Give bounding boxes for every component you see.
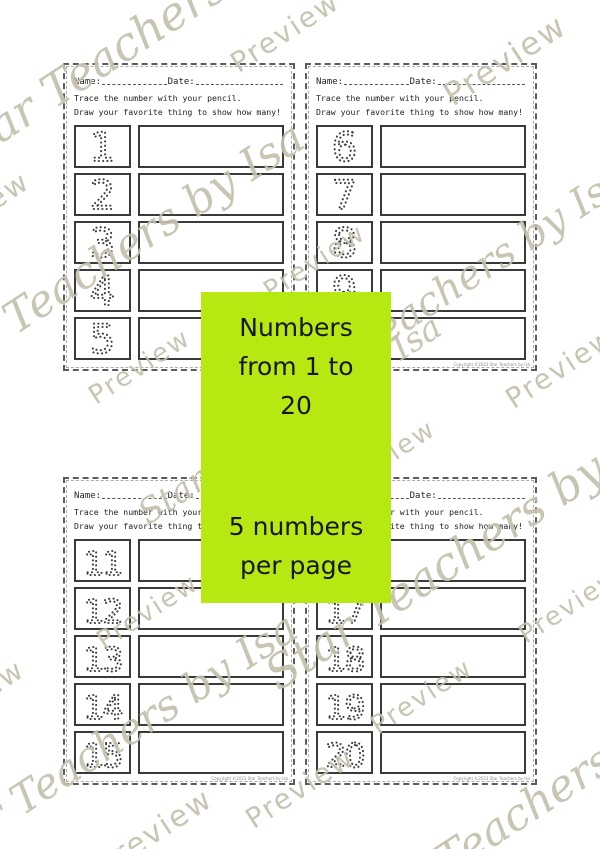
svg-text:3: 3 [90, 223, 115, 262]
number-box: 18 [316, 635, 373, 678]
trace-row: 13 [74, 635, 284, 678]
dotted-number-7: 7 [318, 175, 371, 214]
instruction-line-2: Draw your favorite thing to show how man… [316, 107, 526, 118]
name-label: Name: [316, 77, 343, 87]
overlay-subtitle-block: 5 numbers per page [205, 507, 387, 585]
name-label: Name: [74, 491, 101, 501]
date-blank-line [438, 84, 525, 85]
svg-text:14: 14 [84, 688, 123, 724]
drawing-box [380, 539, 526, 582]
trace-row: 19 [316, 683, 526, 726]
drawing-box [138, 683, 284, 726]
svg-text:13: 13 [84, 640, 122, 676]
date-blank-line [196, 84, 283, 85]
drawing-box [138, 125, 284, 168]
copyright-text: Copyright ©2023 Star Teachers by Isa [211, 776, 288, 781]
drawing-box [380, 731, 526, 774]
svg-text:19: 19 [326, 688, 364, 724]
number-box: 2 [74, 173, 131, 216]
svg-text:20: 20 [326, 736, 364, 772]
drawing-box [380, 269, 526, 312]
date-blank-line [438, 498, 525, 499]
drawing-box [380, 125, 526, 168]
dotted-number-15: 15 [76, 733, 129, 772]
number-box: 5 [74, 317, 131, 360]
watermark-preview-text: Preview [0, 165, 36, 260]
drawing-box [380, 635, 526, 678]
trace-row: 18 [316, 635, 526, 678]
number-box: 11 [74, 539, 131, 582]
name-date-line: Name: Date: [316, 74, 526, 87]
watermark-preview-text: Preview [0, 653, 31, 748]
number-box: 6 [316, 125, 373, 168]
dotted-number-3: 3 [76, 223, 129, 262]
number-box: 20 [316, 731, 373, 774]
product-info-overlay: Numbers from 1 to 20 5 numbers per page [201, 292, 391, 603]
number-box: 15 [74, 731, 131, 774]
dotted-number-2: 2 [76, 175, 129, 214]
trace-row: 20 [316, 731, 526, 774]
svg-text:2: 2 [90, 175, 115, 214]
svg-text:18: 18 [326, 640, 364, 676]
number-box: 13 [74, 635, 131, 678]
trace-row: 1 [74, 125, 284, 168]
watermark-preview-text: Preview [91, 782, 220, 849]
svg-text:15: 15 [84, 736, 122, 772]
svg-text:7: 7 [332, 175, 357, 214]
drawing-box [138, 635, 284, 678]
name-blank-line [102, 498, 167, 499]
trace-row: 15 [74, 731, 284, 774]
instruction-line-1: Trace the number with your pencil. [316, 93, 526, 104]
name-blank-line [344, 84, 409, 85]
dotted-number-14: 14 [76, 685, 129, 724]
svg-text:1: 1 [90, 127, 115, 166]
dotted-number-4: 4 [76, 271, 129, 310]
svg-text:5: 5 [90, 319, 115, 358]
trace-row: 2 [74, 173, 284, 216]
dotted-number-19: 19 [318, 685, 371, 724]
drawing-box [380, 683, 526, 726]
instruction-line-1: Trace the number with your pencil. [74, 93, 284, 104]
date-label: Date: [168, 77, 195, 87]
drawing-box [380, 587, 526, 630]
overlay-title-line-3: 20 [205, 386, 387, 425]
trace-row: 3 [74, 221, 284, 264]
number-box: 7 [316, 173, 373, 216]
dotted-number-1: 1 [76, 127, 129, 166]
overlay-subtitle-line-2: per page [205, 546, 387, 585]
drawing-box [138, 173, 284, 216]
drawing-box [380, 221, 526, 264]
overlay-title-line-2: from 1 to [205, 347, 387, 386]
trace-row: 7 [316, 173, 526, 216]
name-label: Name: [74, 77, 101, 87]
drawing-box [138, 731, 284, 774]
svg-text:11: 11 [84, 544, 122, 580]
trace-row: 14 [74, 683, 284, 726]
dotted-number-8: 8 [318, 223, 371, 262]
number-box: 19 [316, 683, 373, 726]
overlay-title-block: Numbers from 1 to 20 [205, 308, 387, 425]
dotted-number-12: 12 [76, 589, 129, 628]
dotted-number-13: 13 [76, 637, 129, 676]
drawing-box [380, 317, 526, 360]
number-box: 12 [74, 587, 131, 630]
copyright-text: Copyright ©2023 Star Teachers by Isa [453, 776, 530, 781]
dotted-number-20: 20 [318, 733, 371, 772]
number-box: 4 [74, 269, 131, 312]
number-box: 8 [316, 221, 373, 264]
copyright-text: Copyright ©2023 Star Teachers by Isa [453, 362, 530, 367]
dotted-number-5: 5 [76, 319, 129, 358]
svg-text:8: 8 [332, 223, 357, 262]
date-label: Date: [410, 491, 437, 501]
number-box: 1 [74, 125, 131, 168]
number-box: 14 [74, 683, 131, 726]
dotted-number-6: 6 [318, 127, 371, 166]
trace-row: 8 [316, 221, 526, 264]
svg-text:4: 4 [90, 271, 115, 310]
dotted-number-11: 11 [76, 541, 129, 580]
worksheet-preview-canvas: Star Teachers by IsaPreviewPreviewPrevie… [0, 0, 600, 849]
instruction-line-2: Draw your favorite thing to show how man… [74, 107, 284, 118]
overlay-title-line-1: Numbers [205, 308, 387, 347]
number-box: 3 [74, 221, 131, 264]
drawing-box [380, 173, 526, 216]
svg-text:12: 12 [84, 592, 122, 628]
dotted-number-18: 18 [318, 637, 371, 676]
date-label: Date: [410, 77, 437, 87]
drawing-box [138, 221, 284, 264]
name-date-line: Name: Date: [74, 74, 284, 87]
name-blank-line [102, 84, 167, 85]
date-label: Date: [168, 491, 195, 501]
trace-row: 6 [316, 125, 526, 168]
svg-text:6: 6 [332, 127, 357, 166]
overlay-subtitle-line-1: 5 numbers [205, 507, 387, 546]
